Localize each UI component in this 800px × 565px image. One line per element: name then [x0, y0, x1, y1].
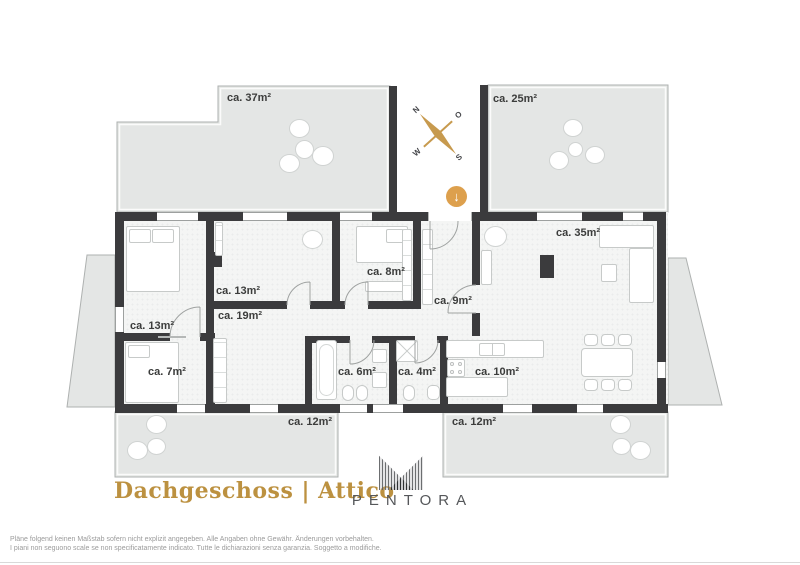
wardrobe-icon: [213, 338, 227, 403]
toilet-icon: [403, 385, 415, 401]
room-label-bath6: ca. 6m²: [338, 366, 376, 378]
room-label-terrace-25: ca. 25m²: [493, 93, 537, 105]
washbasin-icon: [427, 385, 440, 400]
window: [115, 307, 124, 332]
wall: [472, 313, 480, 336]
disclaimer: Pläne folgend keinen Maßstab sofern nich…: [10, 536, 382, 553]
pillow-icon: [129, 229, 151, 243]
pentora-logo-icon: [379, 452, 423, 490]
bidet-icon: [356, 385, 368, 401]
window: [577, 404, 603, 413]
compass-east-label: O: [452, 108, 465, 121]
chair-icon: [610, 415, 631, 434]
pillow-icon: [128, 345, 150, 358]
disclaimer-line-de: Pläne folgend keinen Maßstab sofern nich…: [10, 536, 382, 545]
window: [250, 404, 278, 413]
chair-icon: [147, 438, 166, 455]
cabinet-icon: [481, 250, 492, 285]
plant-icon: [344, 93, 368, 117]
balcony-left-shape: [67, 255, 115, 407]
chair-icon: [618, 334, 632, 346]
compass-south-label: S: [452, 151, 465, 164]
coffee-table-icon: [601, 264, 617, 282]
chair-icon: [289, 119, 310, 138]
wall-entry-left: [389, 86, 397, 212]
sofa-icon: [599, 225, 654, 248]
room-label-bedroom-left: ca. 13m²: [130, 320, 174, 332]
window: [623, 212, 643, 221]
disclaimer-line-it: I piani non seguono scale se non specifi…: [10, 545, 382, 554]
room-label-living: ca. 35m²: [556, 227, 600, 239]
window: [157, 212, 198, 221]
plant-icon: [120, 130, 142, 152]
plant-icon: [362, 109, 384, 131]
plant-icon: [339, 114, 359, 134]
chair-icon: [146, 415, 167, 434]
window: [503, 404, 532, 413]
chair-icon: [601, 334, 615, 346]
room-label-hallway: ca. 19m²: [218, 310, 262, 322]
wall: [657, 212, 666, 413]
room-label-terrace-12r: ca. 12m²: [452, 416, 496, 428]
chair-icon: [549, 151, 569, 170]
room-label-room7: ca. 7m²: [148, 366, 186, 378]
plant-icon: [94, 263, 111, 280]
plant-icon: [301, 452, 319, 470]
pillow-icon: [152, 229, 174, 243]
plant-icon: [447, 450, 465, 468]
wall: [206, 301, 287, 309]
terrace-top-left-shape: [117, 86, 390, 212]
chair-icon: [601, 379, 615, 391]
cabinet-icon: [422, 229, 433, 305]
room-label-terrace-37: ca. 37m²: [227, 92, 271, 104]
toilet-icon: [342, 385, 354, 401]
wardrobe-icon: [402, 229, 412, 301]
floor-plan-page: ca. 37m² ca. 25m² ca. 35m² ca. 13m² ca. …: [0, 0, 800, 565]
compass-rose: N S O W: [394, 90, 482, 178]
window: [373, 404, 403, 413]
kitchen-sink-icon: [479, 343, 505, 356]
kitchen-counter-icon: [446, 377, 508, 397]
chair-icon: [312, 146, 334, 166]
room-label-bath4: ca. 4m²: [398, 366, 436, 378]
compass-north-label: N: [410, 103, 423, 116]
table-icon: [295, 140, 314, 159]
room-label-corridor: ca. 9m²: [434, 295, 472, 307]
room-label-bedroom-middle: ca. 13m²: [216, 285, 260, 297]
window: [657, 362, 666, 378]
plant-icon: [140, 124, 162, 146]
table-icon: [568, 142, 583, 157]
chair-icon: [127, 441, 148, 460]
chair-icon: [279, 154, 300, 173]
room-label-terrace-12l: ca. 12m²: [288, 416, 332, 428]
page-bottom-rule: [0, 562, 800, 563]
plant-pot-icon: [302, 230, 323, 249]
window: [340, 212, 372, 221]
chair-icon: [618, 379, 632, 391]
chair-icon: [584, 334, 598, 346]
wall: [115, 333, 170, 341]
chair-icon: [563, 119, 583, 137]
sofa-icon: [629, 248, 654, 303]
washbasin-icon: [372, 349, 387, 363]
wall: [332, 212, 340, 301]
entry-door-opening: [428, 212, 472, 221]
wall: [472, 213, 480, 285]
stove-icon: [447, 359, 465, 377]
wall: [310, 301, 345, 309]
plant-icon: [126, 150, 146, 170]
stairs-down-icon: ↓: [446, 186, 467, 207]
window: [340, 404, 367, 413]
dresser-icon: [365, 281, 407, 292]
chair-icon: [612, 438, 631, 455]
compass-west-label: W: [410, 146, 423, 159]
chair-icon: [585, 146, 605, 164]
brand-name: PENTORA: [339, 492, 479, 509]
wall: [413, 212, 421, 309]
wall: [206, 212, 214, 341]
plant-icon: [615, 98, 637, 120]
plant-icon: [637, 93, 659, 115]
plant-pot-icon: [484, 226, 507, 247]
plant-icon: [687, 377, 707, 397]
chair-icon: [630, 441, 651, 460]
plant-icon: [629, 115, 649, 135]
dining-table-icon: [581, 348, 633, 377]
window: [177, 404, 205, 413]
window: [537, 212, 582, 221]
chair-icon: [584, 379, 598, 391]
wall-pillar: [540, 255, 554, 278]
bathtub-icon: [316, 340, 337, 400]
wall: [305, 336, 312, 404]
wall-entry-right: [480, 85, 488, 212]
wardrobe-icon: [215, 222, 223, 256]
room-label-kitchen: ca. 10m²: [475, 366, 519, 378]
room-label-bedroom-small: ca. 8m²: [367, 266, 405, 278]
shower-icon: [396, 340, 418, 362]
window: [243, 212, 287, 221]
